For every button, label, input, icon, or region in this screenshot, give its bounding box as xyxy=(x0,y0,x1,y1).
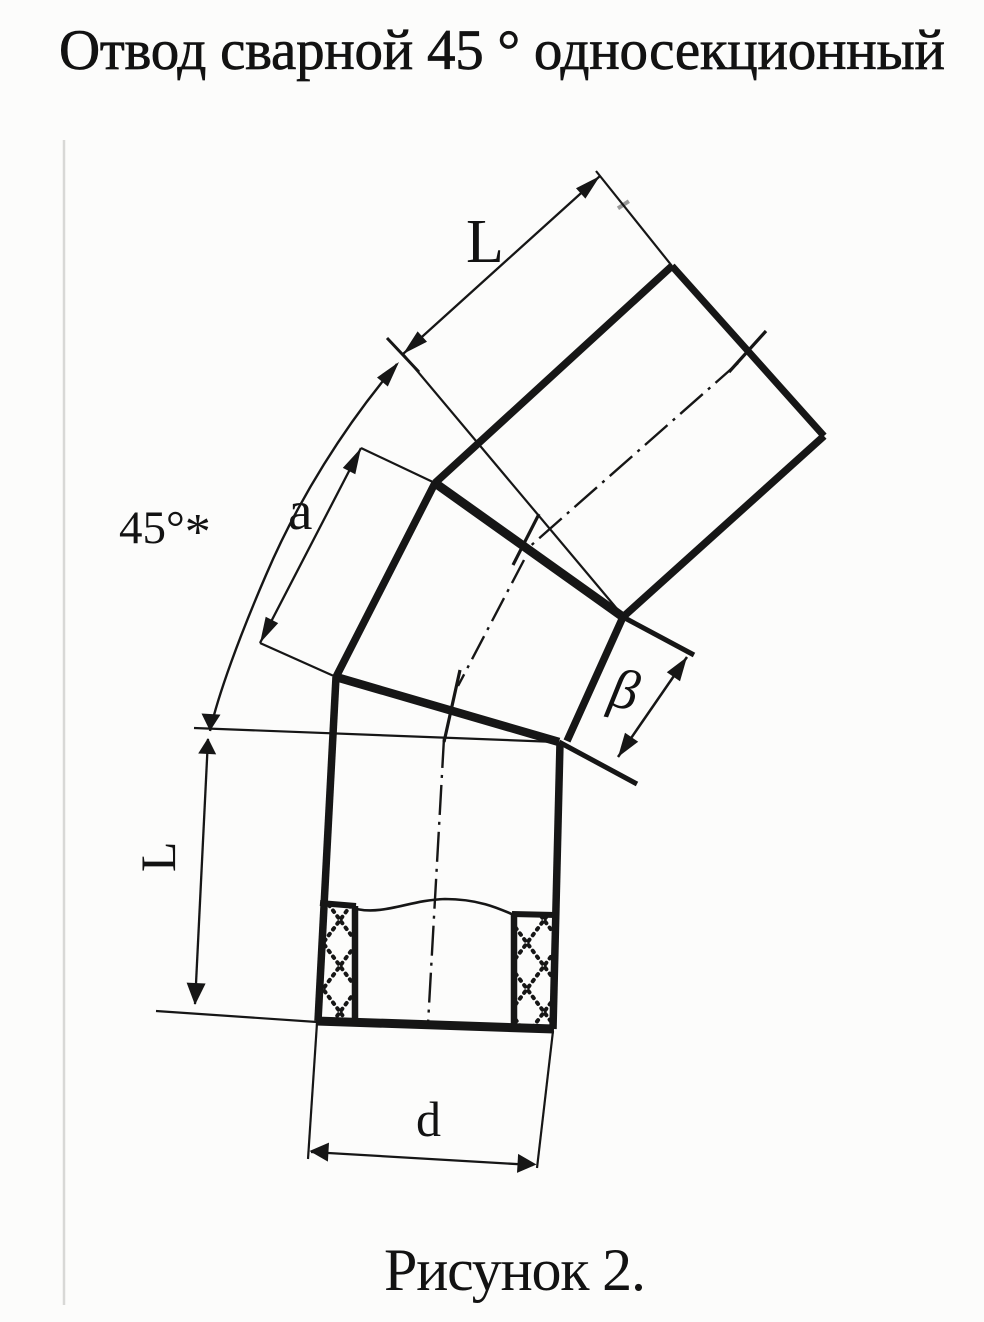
svg-text:L: L xyxy=(466,208,504,276)
svg-text:β: β xyxy=(603,657,644,724)
svg-text:d: d xyxy=(416,1091,441,1147)
svg-text:Рисунок 2.: Рисунок 2. xyxy=(384,1237,646,1303)
svg-text:45°*: 45°* xyxy=(119,502,211,561)
svg-text:L: L xyxy=(130,841,186,872)
svg-text:Отвод сварной 45 ° односекцион: Отвод сварной 45 ° односекционный xyxy=(59,19,945,82)
